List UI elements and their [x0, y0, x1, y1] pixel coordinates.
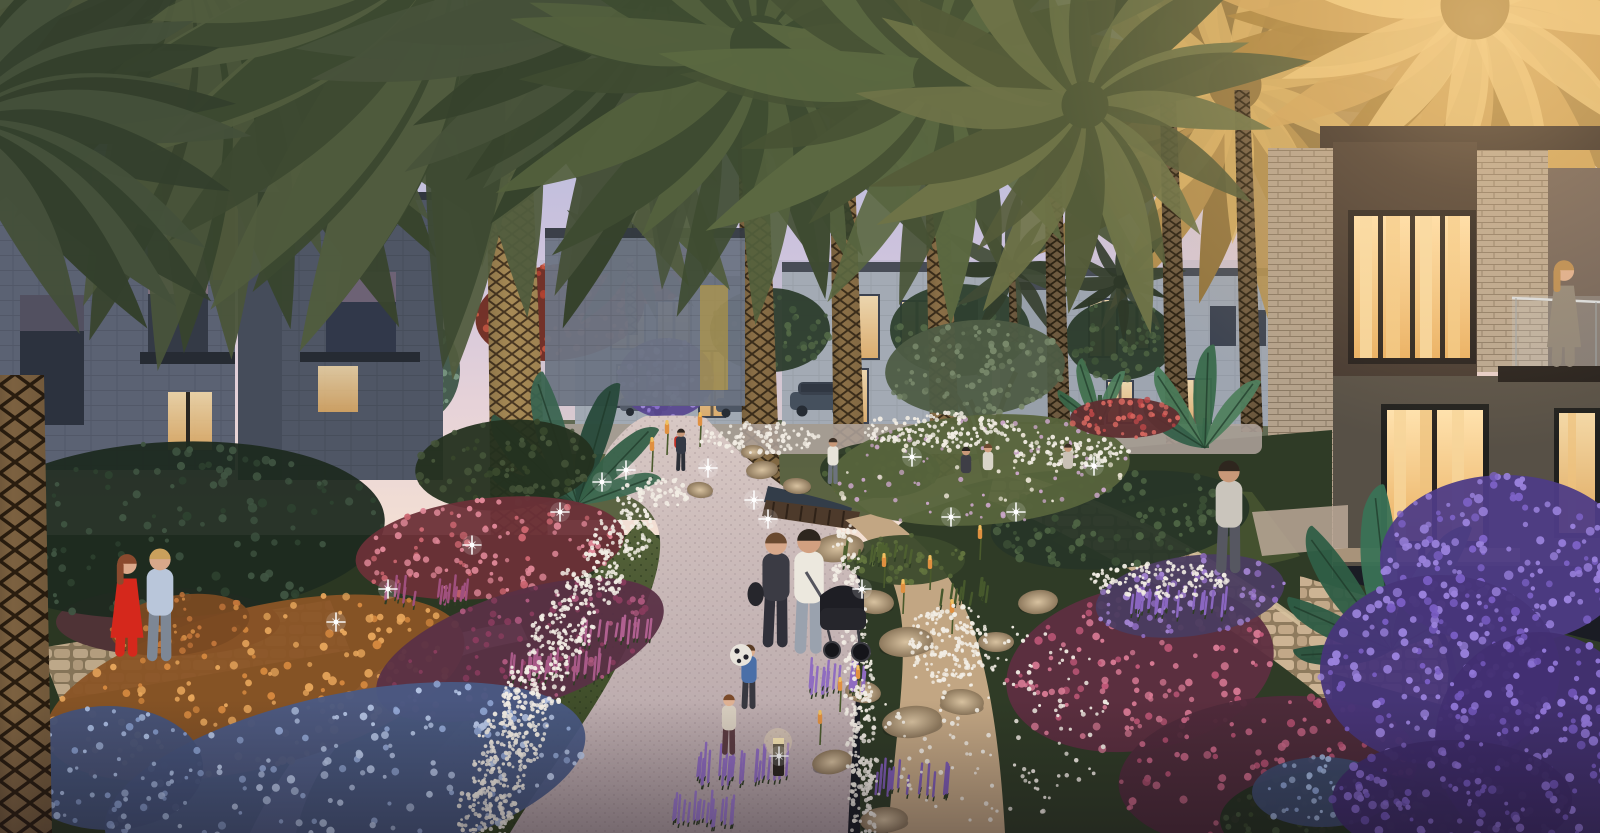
- flower-dot: [1548, 666, 1555, 673]
- daisy: [588, 552, 592, 556]
- daisy: [862, 636, 865, 639]
- flower-dot: [1511, 607, 1520, 616]
- daisy: [604, 557, 608, 561]
- flower-dot: [1480, 541, 1484, 545]
- daisy: [579, 581, 584, 586]
- flower-dot: [1434, 551, 1443, 560]
- flower-dot: [1103, 429, 1106, 432]
- torch-stem: [884, 566, 885, 588]
- daisy: [587, 634, 591, 638]
- flower-dot: [1131, 344, 1137, 350]
- flower-dot: [1469, 545, 1476, 552]
- flower-dot: [1584, 556, 1589, 561]
- flower-dot: [1431, 540, 1439, 548]
- flower-dot: [1478, 637, 1486, 645]
- flower-dot: [1570, 571, 1577, 578]
- flower-dot: [939, 566, 943, 570]
- flower-dot: [1436, 630, 1440, 634]
- daisy: [848, 653, 851, 656]
- flower-dot: [797, 345, 801, 349]
- daisy: [613, 561, 616, 564]
- flower-dot: [444, 399, 448, 403]
- torch-stem: [700, 425, 701, 447]
- flower-dot: [1431, 622, 1437, 628]
- daisy: [521, 692, 524, 695]
- daisy: [618, 539, 623, 544]
- flower-dot: [1504, 571, 1514, 581]
- daisy: [617, 587, 621, 591]
- flower-dot: [1119, 358, 1123, 362]
- flower-dot: [1534, 507, 1540, 513]
- daisy: [653, 503, 658, 508]
- flower-dot: [1565, 646, 1570, 651]
- daisy: [532, 672, 536, 676]
- daisy: [856, 694, 861, 699]
- flower-dot: [1139, 335, 1145, 341]
- daisy: [846, 565, 850, 569]
- daisy: [676, 503, 679, 506]
- flower-dot: [1575, 570, 1582, 577]
- flower-dot: [1392, 652, 1400, 660]
- flower-dot: [1127, 400, 1133, 406]
- daisy: [852, 529, 857, 534]
- flower-dot: [1545, 501, 1551, 507]
- flower-dot: [1099, 416, 1102, 419]
- daisy: [607, 570, 611, 574]
- daisy: [669, 488, 672, 491]
- daisy: [592, 610, 596, 614]
- flower-dot: [822, 471, 828, 477]
- flower-dot: [1352, 609, 1361, 618]
- daisy: [646, 480, 650, 484]
- flower-dot: [1518, 566, 1525, 573]
- flower-dot: [1576, 660, 1581, 665]
- flower-dot: [1536, 536, 1544, 544]
- daisy: [617, 580, 621, 584]
- daisy: [598, 537, 602, 541]
- flower-dot: [1510, 495, 1517, 502]
- flower-dot: [1469, 670, 1477, 678]
- daisy: [551, 647, 554, 650]
- daisy: [621, 487, 624, 490]
- daisy: [636, 507, 639, 510]
- daisy: [581, 575, 584, 578]
- flower-dot: [1460, 512, 1465, 517]
- daisy: [527, 652, 531, 656]
- daisy: [513, 696, 517, 700]
- flower-dot: [1582, 539, 1587, 544]
- flower-dot: [920, 554, 925, 559]
- flower-dot: [1343, 654, 1348, 659]
- flower-dot: [1506, 690, 1513, 697]
- flower-dot: [1072, 349, 1079, 356]
- daisy: [841, 635, 844, 638]
- daisy: [857, 557, 860, 560]
- flower-dot: [951, 552, 955, 556]
- flower-dot: [897, 565, 903, 571]
- flower-dot: [1523, 522, 1528, 527]
- daisy: [642, 521, 647, 526]
- daisy: [661, 478, 664, 481]
- daisy: [619, 574, 624, 579]
- flower-dot: [1564, 595, 1572, 603]
- daisy: [579, 602, 582, 605]
- daisy: [579, 632, 583, 636]
- flower-dot: [1093, 371, 1101, 379]
- daisy: [676, 488, 681, 493]
- villa1-balcony-slab: [140, 352, 235, 364]
- flower-dot: [824, 332, 831, 339]
- daisy: [852, 671, 855, 674]
- flower-dot: [1152, 413, 1155, 416]
- daisy: [574, 585, 578, 589]
- flower-dot: [1531, 586, 1535, 590]
- flower-dot: [1413, 686, 1420, 693]
- daisy: [554, 614, 557, 617]
- daisy: [574, 648, 578, 652]
- flower-dot: [1382, 619, 1388, 625]
- daisy: [638, 490, 641, 493]
- flower-dot: [1121, 415, 1126, 420]
- flower-dot: [1484, 605, 1488, 609]
- flower-dot: [1111, 353, 1118, 360]
- flower-dot: [1366, 647, 1374, 655]
- daisy: [846, 530, 850, 534]
- daisy: [559, 646, 563, 650]
- flower-dot: [1126, 330, 1131, 335]
- daisy: [534, 621, 537, 624]
- flower-dot: [1470, 631, 1479, 640]
- flower-dot: [1418, 555, 1426, 563]
- flower-dot: [1586, 642, 1594, 650]
- daisy: [584, 625, 587, 628]
- daisy: [535, 627, 540, 632]
- flower-dot: [1428, 643, 1433, 648]
- daisy: [565, 662, 569, 666]
- flower-dot: [1586, 527, 1595, 536]
- daisy: [556, 617, 559, 620]
- flower-dot: [1401, 638, 1409, 646]
- daisy: [591, 548, 594, 551]
- flower-dot: [1536, 561, 1541, 566]
- daisy: [660, 482, 663, 485]
- flower-dot: [1481, 616, 1490, 625]
- flower-dot: [1574, 676, 1579, 681]
- flower-dot: [1084, 349, 1088, 353]
- flower-dot: [1424, 597, 1432, 605]
- flower-dot: [1370, 625, 1375, 630]
- villa3-accent-wall: [700, 285, 728, 390]
- flower-dot: [908, 579, 914, 585]
- daisy: [630, 557, 634, 561]
- flower-dot: [1456, 574, 1465, 583]
- flower-dot: [1397, 511, 1404, 518]
- daisy: [565, 660, 568, 663]
- daisy: [573, 587, 577, 591]
- daisy: [509, 683, 514, 688]
- flower-dot: [1353, 673, 1362, 682]
- daisy: [847, 553, 850, 556]
- torch-tip: [650, 437, 653, 442]
- daisy: [868, 685, 871, 688]
- flower-dot: [935, 550, 939, 554]
- daisy: [565, 672, 568, 675]
- daisy: [850, 697, 853, 700]
- flower-dot: [1084, 415, 1090, 421]
- flower-dot: [1421, 694, 1427, 700]
- daisy: [627, 496, 631, 500]
- flower-dot: [1144, 351, 1150, 357]
- flower-dot: [1087, 423, 1092, 428]
- flower-dot: [1137, 328, 1142, 333]
- daisy: [624, 545, 627, 548]
- flower-dot: [1130, 414, 1135, 419]
- daisy: [845, 682, 848, 685]
- flower-dot: [816, 350, 820, 354]
- daisy: [602, 550, 606, 554]
- flower-dot: [1553, 506, 1562, 515]
- daisy: [562, 629, 565, 632]
- flower-dot: [802, 358, 806, 362]
- flower-dot: [921, 568, 928, 575]
- daisy: [538, 671, 542, 675]
- flower-dot: [1452, 569, 1457, 574]
- daisy: [582, 642, 586, 646]
- daisy: [551, 600, 556, 605]
- flower-dot: [1094, 304, 1098, 308]
- torch-tip: [665, 420, 668, 425]
- daisy: [867, 682, 870, 685]
- daisy: [852, 554, 856, 558]
- flower-dot: [1435, 694, 1440, 699]
- daisy: [565, 584, 570, 589]
- villa2-lit-window: [318, 366, 358, 412]
- daisy: [832, 545, 835, 548]
- flower-dot: [1420, 663, 1426, 669]
- daisy: [586, 557, 590, 561]
- flower-dot: [1090, 323, 1095, 328]
- torch-stem: [930, 568, 931, 590]
- daisy: [850, 578, 855, 583]
- flower-dot: [1494, 608, 1498, 612]
- daisy: [861, 679, 864, 682]
- flower-dot: [1116, 416, 1121, 421]
- daisy: [518, 678, 522, 682]
- flower-dot: [1492, 587, 1501, 596]
- daisy: [552, 667, 555, 670]
- flower-dot: [1366, 604, 1375, 613]
- flower-dot: [1372, 672, 1377, 677]
- daisy: [836, 543, 840, 547]
- flower-dot: [1477, 564, 1484, 571]
- flower-dot: [1159, 402, 1164, 407]
- daisy: [582, 570, 587, 575]
- flower-dot: [1431, 611, 1439, 619]
- flower-dot: [1144, 397, 1150, 403]
- daisy: [560, 608, 564, 612]
- daisy: [658, 494, 663, 499]
- daisy: [606, 600, 611, 605]
- daisy: [511, 675, 516, 680]
- daisy: [654, 482, 657, 485]
- flower-dot: [1450, 515, 1456, 521]
- daisy: [550, 672, 554, 676]
- daisy: [849, 583, 852, 586]
- flower-dot: [1576, 513, 1583, 520]
- daisy: [597, 561, 600, 564]
- flower-dot: [1425, 679, 1431, 685]
- flower-dot: [1317, 674, 1324, 681]
- daisy: [857, 566, 860, 569]
- daisy: [842, 563, 845, 566]
- flower-dot: [1489, 472, 1498, 481]
- flower-dot: [1450, 632, 1458, 640]
- daisy: [663, 491, 667, 495]
- daisy: [854, 688, 858, 692]
- daisy: [641, 537, 644, 540]
- daisy: [588, 591, 593, 596]
- flower-dot: [1383, 596, 1391, 604]
- daisy: [539, 646, 542, 649]
- flower-dot: [1522, 579, 1530, 587]
- flower-dot: [1163, 410, 1168, 415]
- daisy: [552, 606, 555, 609]
- daisy: [554, 660, 557, 663]
- flower-dot: [1503, 641, 1511, 649]
- flower-dot: [784, 341, 787, 344]
- flower-dot: [1089, 347, 1093, 351]
- daisy: [569, 638, 572, 641]
- flower-dot: [1513, 672, 1520, 679]
- daisy: [554, 589, 558, 593]
- daisy: [504, 686, 507, 689]
- flower-dot: [1102, 374, 1109, 381]
- torch-tip: [950, 599, 953, 604]
- flower-dot: [1570, 591, 1576, 597]
- flower-dot: [1380, 628, 1389, 637]
- flower-dot: [1172, 423, 1176, 427]
- daisy: [510, 666, 513, 669]
- flower-dot: [1484, 631, 1489, 636]
- daisy: [552, 684, 557, 689]
- daisy: [570, 635, 573, 638]
- daisy: [572, 596, 575, 599]
- daisy: [625, 483, 630, 488]
- daisy: [595, 534, 598, 537]
- flower-dot: [1457, 691, 1464, 698]
- flower-dot: [888, 565, 894, 571]
- daisy: [851, 638, 854, 641]
- flower-dot: [821, 339, 827, 345]
- flower-dot: [1498, 617, 1504, 623]
- flower-dot: [904, 563, 909, 568]
- flower-dot: [1393, 588, 1402, 597]
- daisy: [680, 483, 685, 488]
- daisy: [559, 675, 562, 678]
- daisy: [624, 530, 627, 533]
- daisy: [631, 513, 634, 516]
- daisy: [638, 555, 641, 558]
- daisy: [609, 574, 613, 578]
- daisy: [672, 494, 675, 497]
- daisy: [860, 687, 864, 691]
- flower-dot: [1447, 560, 1452, 565]
- daisy: [648, 477, 652, 481]
- flower-dot: [1570, 524, 1575, 529]
- daisy: [575, 606, 579, 610]
- daisy: [606, 544, 609, 547]
- rendering-canvas: [0, 0, 1600, 833]
- flower-dot: [1450, 599, 1458, 607]
- daisy: [503, 696, 506, 699]
- daisy: [854, 664, 857, 667]
- flower-dot: [1459, 642, 1468, 651]
- daisy: [587, 639, 591, 643]
- daisy: [563, 605, 567, 609]
- daisy: [628, 501, 631, 504]
- daisy: [534, 687, 537, 690]
- flower-dot: [1147, 404, 1153, 410]
- flower-dot: [1540, 604, 1546, 610]
- flower-dot: [1480, 661, 1485, 666]
- daisy: [539, 615, 544, 620]
- daisy: [564, 632, 567, 635]
- daisy: [534, 667, 537, 670]
- daisy: [632, 503, 637, 508]
- daisy: [567, 598, 571, 602]
- flower-dot: [1451, 590, 1458, 597]
- daisy: [585, 584, 589, 588]
- daisy: [542, 682, 545, 685]
- daisy: [595, 541, 599, 545]
- flower-dot: [1414, 543, 1421, 550]
- flower-dot: [1444, 545, 1450, 551]
- flower-dot: [1145, 330, 1153, 338]
- daisy: [849, 539, 853, 543]
- daisy: [650, 488, 653, 491]
- flower-dot: [895, 336, 901, 342]
- daisy: [535, 632, 538, 635]
- flower-dot: [1425, 667, 1432, 674]
- daisy: [611, 524, 614, 527]
- daisy: [563, 598, 567, 602]
- daisy: [602, 598, 605, 601]
- daisy: [583, 619, 587, 623]
- daisy: [600, 570, 603, 573]
- flower-dot: [897, 323, 904, 330]
- daisy: [864, 666, 867, 669]
- flower-dot: [782, 344, 787, 349]
- flower-dot: [1532, 614, 1539, 621]
- flower-dot: [1396, 598, 1405, 607]
- flower-dot: [1140, 424, 1147, 431]
- flower-dot: [1164, 405, 1169, 410]
- daisy: [842, 534, 847, 539]
- flower-dot: [1090, 341, 1095, 346]
- daisy: [846, 667, 850, 671]
- flower-dot: [1446, 503, 1450, 507]
- flower-dot: [863, 559, 868, 564]
- daisy: [588, 584, 593, 589]
- daisy: [869, 673, 873, 677]
- daisy: [617, 552, 620, 555]
- daisy: [674, 478, 677, 481]
- flower-dot: [1530, 573, 1535, 578]
- daisy: [625, 548, 630, 553]
- flower-dot: [1326, 690, 1331, 695]
- flower-dot: [789, 306, 797, 314]
- flower-dot: [1089, 412, 1095, 418]
